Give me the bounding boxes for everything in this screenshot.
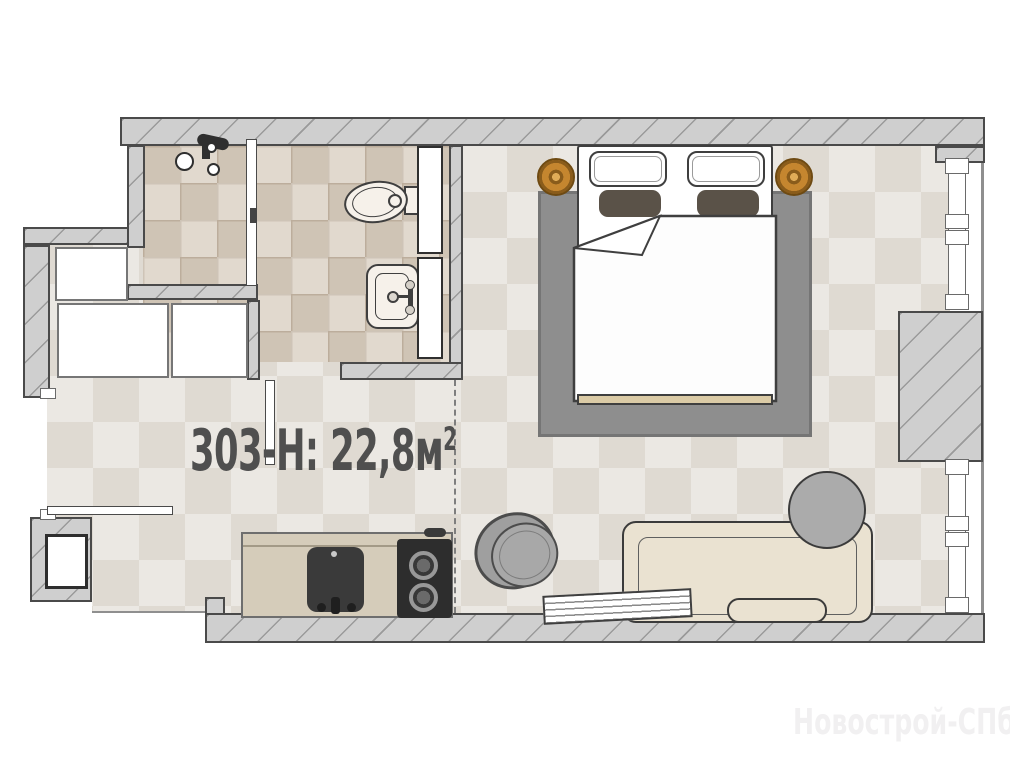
wall-bathroom-bottom	[340, 362, 463, 380]
bath-faucet-dot	[387, 291, 399, 303]
entry-threshold-line	[92, 611, 205, 613]
bed-pillow-right	[687, 151, 765, 187]
window-1-mullion-mid-a	[945, 214, 969, 229]
wall-niche-left	[23, 245, 50, 398]
kitchen-faucet	[331, 597, 340, 614]
bath-faucet-knob-a	[405, 280, 415, 290]
sofa-armrest	[727, 598, 827, 623]
bath-faucet-knob-b	[405, 305, 415, 315]
window-1-mullion-bottom	[945, 294, 969, 310]
toilet-flush-button	[388, 194, 402, 208]
bed-blanket	[572, 214, 778, 404]
kitchen-faucet-knob-right	[347, 603, 356, 612]
shower-head-icon	[175, 152, 194, 171]
utility-shaft	[45, 534, 88, 589]
bed-cushion-right	[697, 190, 759, 217]
wardrobe-cabinet-right	[171, 303, 248, 378]
window-2-mullion-mid-a	[945, 516, 969, 531]
kitchen-handle	[424, 528, 446, 537]
outside-notch-topleft	[23, 140, 127, 227]
unit-area-label: 303-Н: 22,8м2	[190, 418, 456, 484]
window-1-mullion-top	[945, 158, 969, 174]
shower-glass-handle	[250, 208, 257, 223]
bed-cushion-left	[599, 190, 661, 217]
wall-bathroom-left	[127, 145, 145, 248]
pouf	[788, 471, 866, 549]
unit-area-text: 303-Н: 22,8м	[190, 418, 443, 484]
bath-cabinet-lower	[417, 257, 443, 359]
watermark-text: Новострой-СПб	[793, 702, 1010, 743]
window-1-mullion-mid-b	[945, 230, 969, 245]
wall-shower-bottom	[127, 284, 258, 300]
window-2-mullion-top	[945, 459, 969, 475]
wall-niche-top	[23, 227, 133, 245]
window-2-mullion-mid-b	[945, 532, 969, 547]
wardrobe-cabinet-left	[57, 303, 169, 378]
wardrobe-cabinet-small	[55, 247, 128, 301]
zone-divider-dashed-line	[454, 380, 456, 613]
bath-cabinet-upper	[417, 146, 443, 254]
wall-bathroom-right	[449, 145, 463, 380]
bed-pillow-left	[589, 151, 667, 187]
window-2-mullion-bottom	[945, 597, 969, 613]
nightstand-left	[537, 158, 575, 196]
entry-door-jamb-upper	[40, 388, 56, 399]
shower-knob-b	[207, 163, 220, 176]
wall-right-pier	[898, 311, 983, 462]
kitchen-sink-drain-dot	[331, 551, 337, 557]
cooktop-burner-top	[409, 551, 438, 580]
wall-bottom-step	[205, 597, 225, 615]
bed-footboard	[577, 394, 773, 405]
entry-door-leaf	[47, 506, 173, 515]
outside-notch-bottomleft	[28, 602, 92, 622]
wall-bathroom-pier	[247, 300, 260, 380]
unit-area-sup: 2	[443, 420, 456, 458]
nightstand-right	[775, 158, 813, 196]
cooktop-burner-bottom	[409, 583, 438, 612]
floor-plan: 303-Н: 22,8м2 Новострой-СПб	[0, 0, 1010, 768]
kitchen-faucet-knob-left	[317, 603, 326, 612]
shower-knob-a	[206, 142, 217, 153]
